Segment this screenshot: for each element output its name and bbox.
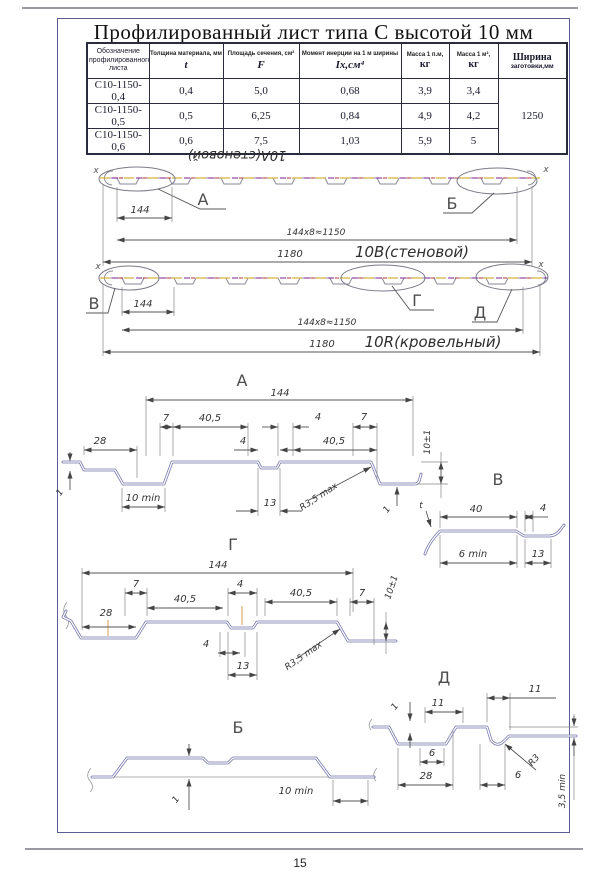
cell-mass-pm: 3,9 <box>401 79 449 104</box>
cell-inertia: 1,03 <box>299 129 401 155</box>
page-number: 15 <box>0 856 600 870</box>
cell-thickness: 0,6 <box>149 129 223 155</box>
cell-mass-pm: 4,9 <box>401 104 449 129</box>
table-row: С10-1150-0,4 0,4 5,0 0,68 3,9 3,4 1250 <box>87 79 567 104</box>
cell-area: 5,0 <box>223 79 299 104</box>
cell-thickness: 0,5 <box>149 104 223 129</box>
cell-designation: С10-1150-0,5 <box>87 104 149 129</box>
table-row: С10-1150-0,6 0,6 7,5 1,03 5,9 5 <box>87 129 567 155</box>
col-header-mass-m2: Масса 1 м²,кг <box>449 43 498 79</box>
page-bottom-rule <box>25 848 583 850</box>
spec-table: Обозначение профилированного листа Толщи… <box>86 42 568 155</box>
cell-mass-m2: 4,2 <box>449 104 498 129</box>
col-header-area: Площадь сечения, см²F <box>223 43 299 79</box>
cell-inertia: 0,68 <box>299 79 401 104</box>
cell-blank-width: 1250 <box>498 79 567 155</box>
table-row: С10-1150-0,5 0,5 6,25 0,84 4,9 4,2 <box>87 104 567 129</box>
col-header-mass-pm: Масса 1 п.м,кг <box>401 43 449 79</box>
catalog-page: { "page": { "number": "15", "title": "Пр… <box>0 0 600 885</box>
cell-designation: С10-1150-0,6 <box>87 129 149 155</box>
col-header-designation: Обозначение профилированного листа <box>87 43 149 79</box>
col-header-inertia: Момент инерции на 1 м шириныIх,см⁴ <box>299 43 401 79</box>
cell-thickness: 0,4 <box>149 79 223 104</box>
cell-area: 7,5 <box>223 129 299 155</box>
cell-designation: С10-1150-0,4 <box>87 79 149 104</box>
cell-mass-m2: 5 <box>449 129 498 155</box>
col-header-blank-width: Шириназаготовки,мм <box>498 43 567 79</box>
cell-inertia: 0,84 <box>299 104 401 129</box>
col-header-thickness: Толщина материала, ммt <box>149 43 223 79</box>
cell-mass-pm: 5,9 <box>401 129 449 155</box>
cell-mass-m2: 3,4 <box>449 79 498 104</box>
cell-area: 6,25 <box>223 104 299 129</box>
table-header-row: Обозначение профилированного листа Толщи… <box>87 43 567 79</box>
page-top-rule <box>22 7 578 9</box>
